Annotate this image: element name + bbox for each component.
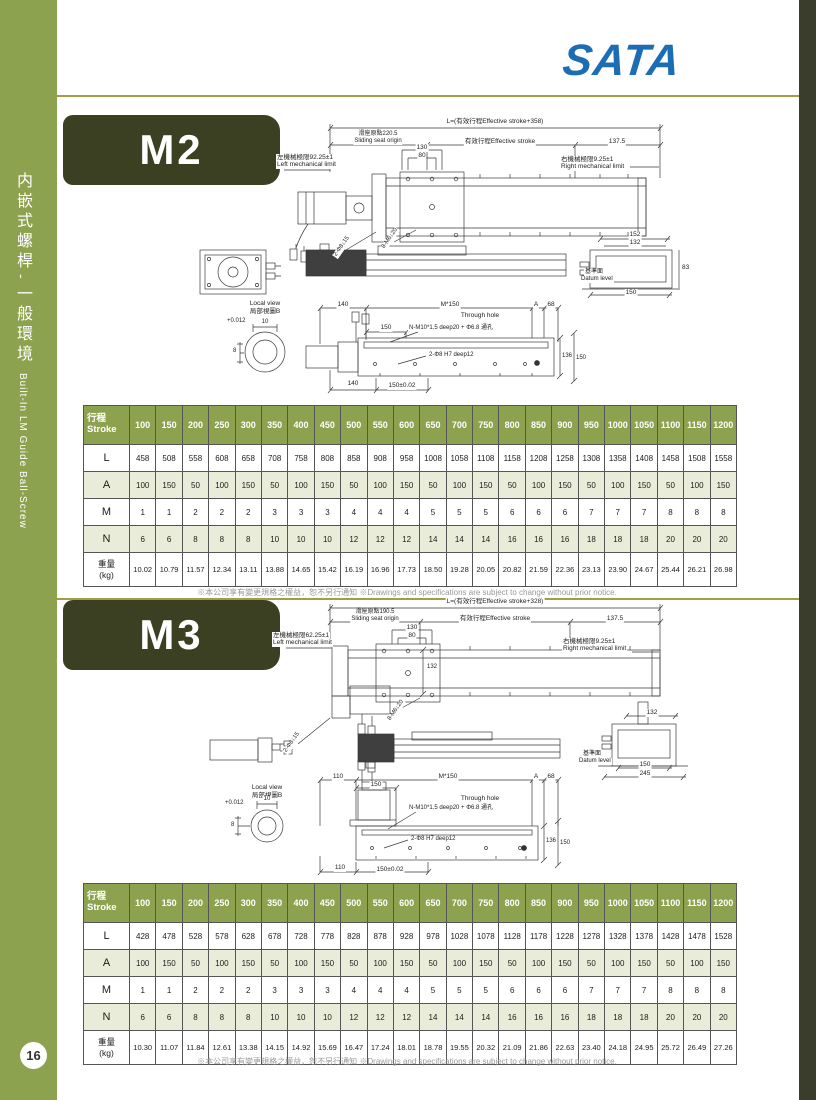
table-cell: 12 bbox=[367, 1004, 393, 1031]
dim-label: 137.5 bbox=[608, 138, 626, 146]
table-cell: 10 bbox=[261, 526, 287, 553]
stroke-col-header: 100 bbox=[130, 406, 156, 445]
table-cell: 100 bbox=[446, 950, 472, 977]
m3-spec-table: 行程Stroke10015020025030035040045050055060… bbox=[83, 883, 739, 1065]
table-cell: 20 bbox=[684, 1004, 710, 1031]
table-cell: 8 bbox=[209, 1004, 235, 1031]
table-cell: 150 bbox=[552, 472, 578, 499]
table-cell: 8 bbox=[710, 977, 736, 1004]
table-row: L458508558608658708758808858908958100810… bbox=[84, 445, 737, 472]
table-cell: 8 bbox=[684, 977, 710, 1004]
m2-technical-drawing: L=(有效行程Effective stroke+358) 滑座原點220.5 S… bbox=[180, 112, 710, 410]
table-cell: 26.98 bbox=[710, 553, 736, 587]
stroke-col-header: 750 bbox=[473, 406, 499, 445]
stroke-col-header: 950 bbox=[578, 884, 604, 923]
table-cell: 100 bbox=[288, 950, 314, 977]
table-cell: 50 bbox=[182, 950, 208, 977]
table-cell: 3 bbox=[288, 977, 314, 1004]
table-cell: 13.88 bbox=[261, 553, 287, 587]
table-cell: 50 bbox=[261, 472, 287, 499]
stroke-col-header: 750 bbox=[473, 884, 499, 923]
stroke-col-header: 350 bbox=[261, 884, 287, 923]
dim-label: 68 bbox=[546, 301, 555, 309]
table-cell: 18 bbox=[631, 1004, 657, 1031]
stroke-col-header: 650 bbox=[420, 406, 446, 445]
table-cell: 7 bbox=[578, 977, 604, 1004]
table-cell: 150 bbox=[473, 472, 499, 499]
table-row: N668881010101212121414141616161818182020… bbox=[84, 1004, 737, 1031]
table-cell: 5 bbox=[420, 499, 446, 526]
stroke-col-header: 550 bbox=[367, 406, 393, 445]
table-cell: 6 bbox=[499, 977, 525, 1004]
table-cell: 1558 bbox=[710, 445, 736, 472]
row-label: M bbox=[84, 977, 130, 1004]
m3-drawing-lines bbox=[180, 598, 710, 890]
table-cell: 16 bbox=[552, 526, 578, 553]
table-cell: 8 bbox=[209, 526, 235, 553]
stroke-col-header: 200 bbox=[182, 884, 208, 923]
dim-label: 10 bbox=[261, 319, 270, 326]
table-cell: 1208 bbox=[525, 445, 551, 472]
datum-label: Datum level bbox=[580, 276, 614, 283]
dim-label: 245 bbox=[639, 770, 652, 778]
table-cell: 778 bbox=[314, 923, 340, 950]
table-cell: 23.90 bbox=[605, 553, 631, 587]
table-cell: 20 bbox=[657, 526, 683, 553]
table-cell: 1 bbox=[156, 499, 182, 526]
table-cell: 3 bbox=[314, 499, 340, 526]
stroke-col-header: 1050 bbox=[631, 406, 657, 445]
table-cell: 16 bbox=[525, 526, 551, 553]
table-cell: 150 bbox=[710, 950, 736, 977]
table-cell: 6 bbox=[499, 499, 525, 526]
stroke-col-header: 250 bbox=[209, 406, 235, 445]
table-cell: 13.11 bbox=[235, 553, 261, 587]
table-cell: 100 bbox=[446, 472, 472, 499]
table-cell: 6 bbox=[130, 1004, 156, 1031]
stroke-col-header: 500 bbox=[341, 884, 367, 923]
note-en: ※Drawings and specifications are subject… bbox=[359, 588, 616, 597]
table-cell: 150 bbox=[235, 472, 261, 499]
sidebar-vertical-title: 内嵌式螺桿-一般環境Built-In LM Guide Ball-Screw bbox=[14, 172, 30, 529]
sidebar-title-zh: 内嵌式螺桿 bbox=[14, 172, 31, 272]
table-cell: 578 bbox=[209, 923, 235, 950]
table-cell: 20 bbox=[684, 526, 710, 553]
table-cell: 16 bbox=[525, 1004, 551, 1031]
stroke-col-header: 900 bbox=[552, 884, 578, 923]
row-label: L bbox=[84, 923, 130, 950]
table-cell: 150 bbox=[314, 472, 340, 499]
table-cell: 1478 bbox=[684, 923, 710, 950]
table-cell: 16.19 bbox=[341, 553, 367, 587]
table-cell: 150 bbox=[156, 472, 182, 499]
table-cell: 4 bbox=[393, 977, 419, 1004]
dim-label: 150 bbox=[380, 324, 393, 332]
sidebar-dash: - bbox=[14, 274, 30, 283]
table-cell: 12 bbox=[393, 1004, 419, 1031]
datum-label: Datum level bbox=[578, 758, 612, 765]
stroke-col-header: 700 bbox=[446, 406, 472, 445]
table-cell: 928 bbox=[393, 923, 419, 950]
table-cell: 7 bbox=[605, 977, 631, 1004]
table-cell: 808 bbox=[314, 445, 340, 472]
table-cell: 100 bbox=[605, 950, 631, 977]
table-row: A100150501001505010015050100150501001505… bbox=[84, 472, 737, 499]
dim-label: Sliding seat origin bbox=[353, 138, 402, 145]
table-cell: 19.28 bbox=[446, 553, 472, 587]
table-cell: 2 bbox=[182, 977, 208, 1004]
table-cell: 100 bbox=[525, 950, 551, 977]
note-zh: ※本公司享有變更規格之權益，恕不另行通知 bbox=[197, 1057, 357, 1066]
table-cell: 8 bbox=[657, 499, 683, 526]
table-cell: 150 bbox=[473, 950, 499, 977]
table-cell: 20 bbox=[657, 1004, 683, 1031]
dim-label: 132 bbox=[646, 709, 659, 717]
table-cell: 100 bbox=[684, 472, 710, 499]
table-cell: 24.67 bbox=[631, 553, 657, 587]
m2-note: ※本公司享有變更規格之權益，恕不另行通知 ※Drawings and speci… bbox=[57, 587, 757, 598]
table-row: N668881010101212121414141616161818182020… bbox=[84, 526, 737, 553]
table-cell: 50 bbox=[420, 950, 446, 977]
table-cell: 558 bbox=[182, 445, 208, 472]
local-view-label: Local view bbox=[249, 300, 281, 308]
dim-label: +0.012 bbox=[224, 800, 245, 807]
dim-label: 80 bbox=[407, 632, 416, 640]
table-cell: 8 bbox=[235, 1004, 261, 1031]
row-label: N bbox=[84, 526, 130, 553]
table-cell: 18 bbox=[605, 1004, 631, 1031]
table-cell: 20.82 bbox=[499, 553, 525, 587]
table-cell: 528 bbox=[182, 923, 208, 950]
table-cell: 1308 bbox=[578, 445, 604, 472]
dim-label: 8 bbox=[232, 348, 237, 355]
table-cell: 50 bbox=[261, 950, 287, 977]
table-cell: 758 bbox=[288, 445, 314, 472]
stroke-col-header: 300 bbox=[235, 406, 261, 445]
dim-label: 130 bbox=[406, 624, 419, 632]
dim-label: Through hole bbox=[460, 312, 500, 320]
table-cell: 50 bbox=[578, 472, 604, 499]
stroke-spec-table: 行程Stroke10015020025030035040045050055060… bbox=[83, 883, 737, 1065]
stroke-col-header: 600 bbox=[393, 884, 419, 923]
table-cell: 150 bbox=[631, 950, 657, 977]
table-cell: 1378 bbox=[631, 923, 657, 950]
table-cell: 50 bbox=[182, 472, 208, 499]
table-cell: 1108 bbox=[473, 445, 499, 472]
table-cell: 20 bbox=[710, 526, 736, 553]
table-cell: 150 bbox=[631, 472, 657, 499]
table-cell: 7 bbox=[631, 977, 657, 1004]
dim-label: 137.5 bbox=[606, 615, 624, 623]
table-cell: 1028 bbox=[446, 923, 472, 950]
note-en: ※Drawings and specifications are subject… bbox=[359, 1057, 616, 1066]
table-cell: 4 bbox=[367, 499, 393, 526]
dim-label: 136 bbox=[561, 353, 573, 360]
table-cell: 2 bbox=[209, 499, 235, 526]
table-cell: 1158 bbox=[499, 445, 525, 472]
table-cell: 478 bbox=[156, 923, 182, 950]
dim-label: 110 bbox=[334, 864, 346, 872]
table-cell: 828 bbox=[341, 923, 367, 950]
m2-drawing-lines bbox=[180, 112, 710, 410]
table-cell: 978 bbox=[420, 923, 446, 950]
stroke-col-header: 450 bbox=[314, 406, 340, 445]
row-label: 重量(kg) bbox=[84, 553, 130, 587]
stroke-col-header: 1100 bbox=[657, 406, 683, 445]
local-view-label: 局部視圖B bbox=[249, 308, 281, 316]
table-cell: 1178 bbox=[525, 923, 551, 950]
table-cell: 100 bbox=[288, 472, 314, 499]
stroke-col-header: 700 bbox=[446, 884, 472, 923]
table-cell: 2 bbox=[235, 977, 261, 1004]
stroke-col-header: 800 bbox=[499, 406, 525, 445]
table-cell: 20 bbox=[710, 1004, 736, 1031]
table-cell: 6 bbox=[552, 977, 578, 1004]
dim-label: 140 bbox=[347, 380, 360, 388]
table-cell: 16 bbox=[499, 526, 525, 553]
note-zh: ※本公司享有變更規格之權益，恕不另行通知 bbox=[197, 588, 357, 597]
sidebar-subtitle-zh: 一般環境 bbox=[14, 285, 31, 365]
table-cell: 508 bbox=[156, 445, 182, 472]
dim-label: 152 bbox=[629, 231, 642, 239]
table-cell: 1508 bbox=[684, 445, 710, 472]
dim-label: 132 bbox=[426, 664, 438, 671]
table-cell: 50 bbox=[657, 950, 683, 977]
dim-label: 有效行程Effective stroke bbox=[464, 138, 536, 146]
table-cell: 150 bbox=[314, 950, 340, 977]
stroke-col-header: 1150 bbox=[684, 884, 710, 923]
table-cell: 150 bbox=[552, 950, 578, 977]
table-cell: 14 bbox=[473, 526, 499, 553]
stroke-header: 行程Stroke bbox=[84, 406, 130, 445]
stroke-col-header: 500 bbox=[341, 406, 367, 445]
stroke-col-header: 1050 bbox=[631, 884, 657, 923]
stroke-col-header: 150 bbox=[156, 406, 182, 445]
table-cell: 50 bbox=[499, 950, 525, 977]
table-cell: 100 bbox=[684, 950, 710, 977]
stroke-col-header: 950 bbox=[578, 406, 604, 445]
table-cell: 15.42 bbox=[314, 553, 340, 587]
table-cell: 3 bbox=[314, 977, 340, 1004]
stroke-header: 行程Stroke bbox=[84, 884, 130, 923]
table-cell: 608 bbox=[209, 445, 235, 472]
table-cell: 16.96 bbox=[367, 553, 393, 587]
table-cell: 1408 bbox=[631, 445, 657, 472]
table-cell: 1008 bbox=[420, 445, 446, 472]
dim-label: 68 bbox=[546, 773, 555, 781]
stroke-col-header: 1200 bbox=[710, 884, 736, 923]
dim-label: 8 bbox=[230, 822, 235, 829]
row-label: L bbox=[84, 445, 130, 472]
row-label: A bbox=[84, 950, 130, 977]
table-cell: 100 bbox=[367, 950, 393, 977]
stroke-col-header: 650 bbox=[420, 884, 446, 923]
table-cell: 6 bbox=[525, 499, 551, 526]
table-cell: 25.44 bbox=[657, 553, 683, 587]
dim-label: A bbox=[533, 773, 539, 781]
table-cell: 16 bbox=[499, 1004, 525, 1031]
table-cell: 18 bbox=[578, 1004, 604, 1031]
table-cell: 14 bbox=[446, 526, 472, 553]
stroke-col-header: 900 bbox=[552, 406, 578, 445]
table-cell: 8 bbox=[182, 1004, 208, 1031]
table-cell: 8 bbox=[710, 499, 736, 526]
callout-label: N-M10*1.5 deep20 + Φ6.8 通孔 bbox=[408, 805, 494, 812]
table-cell: 23.13 bbox=[578, 553, 604, 587]
dim-label: +0.012 bbox=[226, 318, 247, 325]
table-cell: 678 bbox=[261, 923, 287, 950]
table-cell: 100 bbox=[209, 950, 235, 977]
table-cell: 8 bbox=[657, 977, 683, 1004]
dim-label: 150 bbox=[575, 355, 587, 362]
dim-label: 132 bbox=[629, 239, 642, 247]
table-row: L428478528578628678728778828878928978102… bbox=[84, 923, 737, 950]
table-cell: 12 bbox=[393, 526, 419, 553]
table-cell: 4 bbox=[341, 977, 367, 1004]
table-cell: 14 bbox=[420, 1004, 446, 1031]
table-cell: 10 bbox=[288, 526, 314, 553]
dim-label: L=(有效行程Effective stroke+328) bbox=[446, 598, 545, 606]
table-cell: 958 bbox=[393, 445, 419, 472]
table-cell: 2 bbox=[182, 499, 208, 526]
table-cell: 3 bbox=[288, 499, 314, 526]
sata-logo: SATA bbox=[560, 36, 683, 86]
callout-label: 2-Φ8 H7 deep12 bbox=[410, 836, 456, 843]
table-cell: 14 bbox=[473, 1004, 499, 1031]
dim-label: 有效行程Effective stroke bbox=[459, 615, 531, 623]
table-cell: 8 bbox=[235, 526, 261, 553]
table-cell: 10.02 bbox=[130, 553, 156, 587]
table-cell: 1 bbox=[130, 499, 156, 526]
dim-label: Sliding seat origin bbox=[350, 616, 399, 623]
stroke-col-header: 400 bbox=[288, 406, 314, 445]
callout-label: 2-Φ8 H7 deep12 bbox=[428, 352, 474, 359]
callout-label: N-M10*1.5 deep20 + Φ6.8 通孔 bbox=[408, 325, 494, 332]
local-view-label: Local view bbox=[251, 784, 283, 792]
table-row: M11222333444555666777888 bbox=[84, 977, 737, 1004]
table-cell: 5 bbox=[420, 977, 446, 1004]
table-cell: 6 bbox=[156, 526, 182, 553]
table-cell: 628 bbox=[235, 923, 261, 950]
table-cell: 150 bbox=[156, 950, 182, 977]
stroke-col-header: 850 bbox=[525, 406, 551, 445]
table-row: M11222333444555666777888 bbox=[84, 499, 737, 526]
top-rule bbox=[57, 95, 799, 97]
table-cell: 5 bbox=[446, 499, 472, 526]
table-cell: 100 bbox=[605, 472, 631, 499]
stroke-col-header: 300 bbox=[235, 884, 261, 923]
stroke-col-header: 1150 bbox=[684, 406, 710, 445]
dim-label: Through hole bbox=[460, 795, 500, 803]
table-cell: 728 bbox=[288, 923, 314, 950]
table-cell: 10 bbox=[288, 1004, 314, 1031]
table-cell: 50 bbox=[341, 472, 367, 499]
stroke-spec-table: 行程Stroke10015020025030035040045050055060… bbox=[83, 405, 737, 587]
row-label: M bbox=[84, 499, 130, 526]
table-cell: 50 bbox=[578, 950, 604, 977]
stroke-col-header: 100 bbox=[130, 884, 156, 923]
table-cell: 100 bbox=[209, 472, 235, 499]
dim-label: Right mechanical limit bbox=[560, 163, 625, 171]
table-cell: 4 bbox=[341, 499, 367, 526]
table-cell: 14.65 bbox=[288, 553, 314, 587]
dim-label: 150 bbox=[370, 781, 383, 789]
stroke-col-header: 200 bbox=[182, 406, 208, 445]
table-cell: 858 bbox=[341, 445, 367, 472]
table-cell: 100 bbox=[367, 472, 393, 499]
table-cell: 22.36 bbox=[552, 553, 578, 587]
table-cell: 10 bbox=[261, 1004, 287, 1031]
table-cell: 908 bbox=[367, 445, 393, 472]
table-cell: 428 bbox=[130, 923, 156, 950]
table-cell: 4 bbox=[367, 977, 393, 1004]
stroke-col-header: 600 bbox=[393, 406, 419, 445]
table-cell: 5 bbox=[473, 499, 499, 526]
table-cell: 50 bbox=[657, 472, 683, 499]
table-cell: 1 bbox=[130, 977, 156, 1004]
table-cell: 14 bbox=[420, 526, 446, 553]
stroke-col-header: 1000 bbox=[605, 406, 631, 445]
table-cell: 150 bbox=[235, 950, 261, 977]
table-cell: 7 bbox=[605, 499, 631, 526]
table-cell: 1428 bbox=[657, 923, 683, 950]
stroke-col-header: 150 bbox=[156, 884, 182, 923]
dim-label: A bbox=[533, 301, 539, 309]
table-cell: 658 bbox=[235, 445, 261, 472]
table-row: 重量(kg)10.0210.7911.5712.3413.1113.8814.6… bbox=[84, 553, 737, 587]
dim-label: 150 bbox=[559, 840, 571, 847]
table-cell: 4 bbox=[393, 499, 419, 526]
table-cell: 10 bbox=[314, 1004, 340, 1031]
dim-label: 150 bbox=[625, 289, 638, 297]
stroke-col-header: 1200 bbox=[710, 406, 736, 445]
stroke-col-header: 800 bbox=[499, 884, 525, 923]
dim-label: M*150 bbox=[440, 301, 461, 309]
row-label: N bbox=[84, 1004, 130, 1031]
table-cell: 3 bbox=[261, 977, 287, 1004]
table-cell: 150 bbox=[710, 472, 736, 499]
table-cell: 100 bbox=[130, 472, 156, 499]
dim-label: 80 bbox=[417, 152, 426, 160]
table-cell: 150 bbox=[393, 950, 419, 977]
m2-spec-table: 行程Stroke10015020025030035040045050055060… bbox=[83, 405, 739, 587]
table-cell: 878 bbox=[367, 923, 393, 950]
table-cell: 16 bbox=[552, 1004, 578, 1031]
table-cell: 12 bbox=[367, 526, 393, 553]
right-edge-strip bbox=[799, 0, 816, 1100]
table-cell: 8 bbox=[182, 526, 208, 553]
stroke-col-header: 250 bbox=[209, 884, 235, 923]
dim-label: 110 bbox=[332, 773, 344, 781]
m3-note: ※本公司享有變更規格之權益，恕不另行通知 ※Drawings and speci… bbox=[57, 1056, 757, 1067]
page-number: 16 bbox=[20, 1042, 47, 1069]
table-cell: 1 bbox=[156, 977, 182, 1004]
table-cell: 150 bbox=[393, 472, 419, 499]
table-cell: 6 bbox=[552, 499, 578, 526]
table-cell: 50 bbox=[341, 950, 367, 977]
table-cell: 17.73 bbox=[393, 553, 419, 587]
table-cell: 100 bbox=[130, 950, 156, 977]
dim-label: 150 bbox=[639, 761, 652, 769]
table-cell: 7 bbox=[578, 499, 604, 526]
catalog-page: 内嵌式螺桿-一般環境Built-In LM Guide Ball-Screw 1… bbox=[0, 0, 816, 1100]
dim-label: 10 bbox=[263, 796, 272, 803]
dim-label: Left mechanical limit bbox=[276, 161, 337, 169]
table-cell: 5 bbox=[446, 977, 472, 1004]
table-cell: 3 bbox=[261, 499, 287, 526]
m3-technical-drawing: L=(有效行程Effective stroke+328) 滑座原點190.5 S… bbox=[180, 598, 710, 890]
table-cell: 2 bbox=[209, 977, 235, 1004]
